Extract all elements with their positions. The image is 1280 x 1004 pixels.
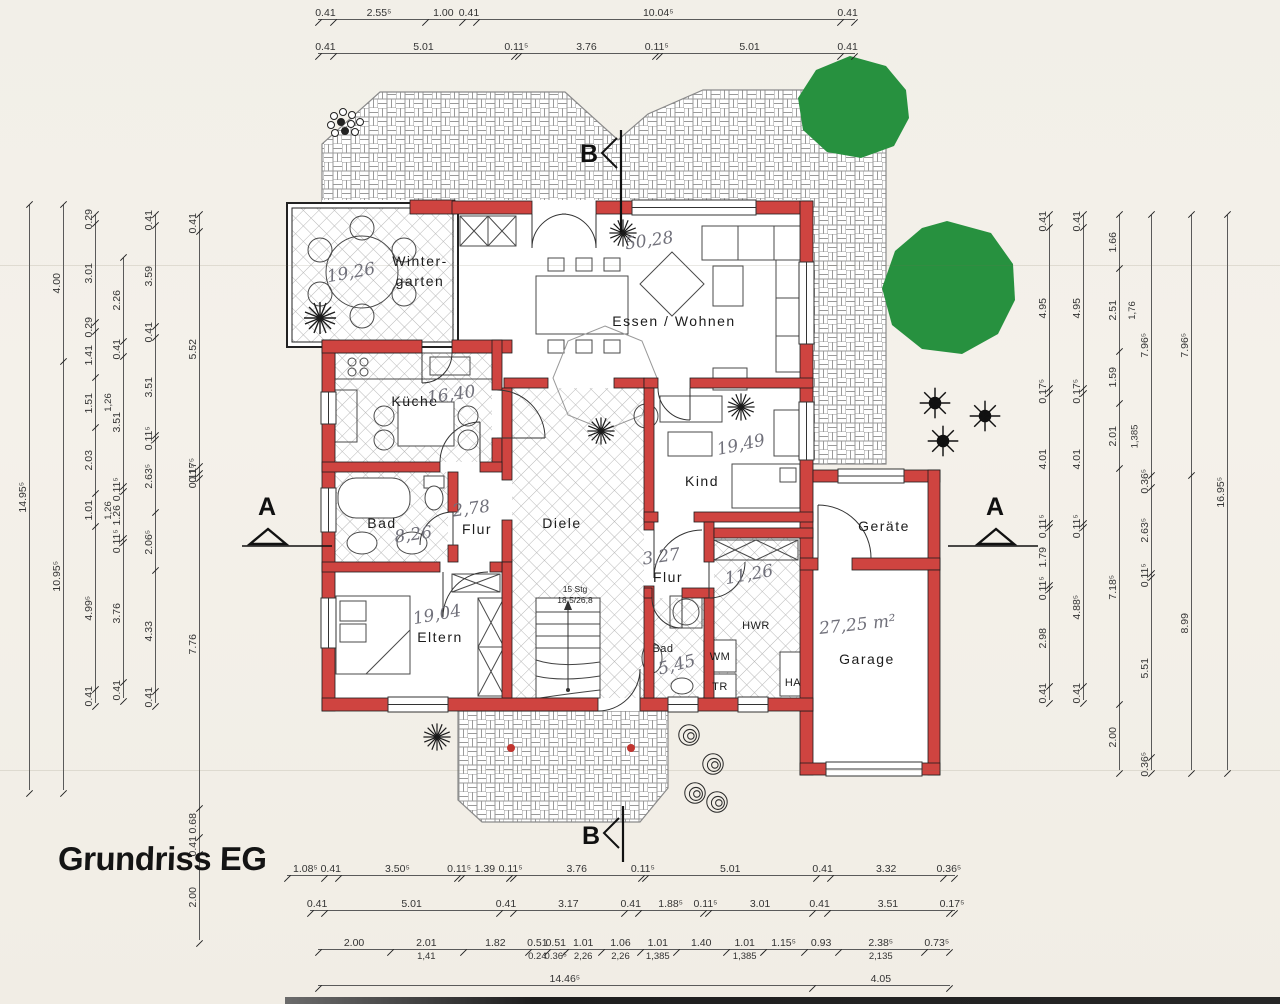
dim-segment: 1.40 (676, 936, 726, 954)
window (799, 402, 814, 460)
dim-value: 2.01 (1108, 426, 1119, 446)
tree (882, 221, 1015, 354)
dim-segment: 0.41 (816, 862, 830, 880)
dim-sub-value: 2,135 (869, 951, 893, 962)
dim-segment: 4.95 (1040, 228, 1058, 388)
dim-value: 0.36⁵ (1140, 752, 1151, 777)
drawing-title: Grundriss EG (57, 840, 267, 878)
room-label-wintergarten-1: Winter- (392, 253, 448, 269)
dim-value: 3.17 (558, 899, 578, 916)
dim-value: 0.41 (144, 687, 155, 707)
dim-chain-right-2: 0.414.950.17⁵4.010.11⁵4.88⁵0.41 (1074, 215, 1092, 700)
dim-segment: 2.26 (114, 258, 132, 342)
dim-segment: 3.32 (830, 862, 943, 880)
scanned-floorplan-page: Winter- garten 19,26 Essen / Wohnen 50,2… (0, 0, 1280, 1004)
dim-value: 10.04⁵ (643, 8, 674, 25)
dim-sub-value: 2,26 (611, 951, 630, 962)
dim-chain-right-6: 16.95⁵ (1218, 215, 1236, 770)
dim-segment: 0.41 (840, 6, 855, 24)
stairs-riser: 18,5/26,8 (557, 595, 593, 605)
dim-value: 1.88⁵ (658, 899, 683, 916)
dim-value: 3.51 (878, 899, 898, 916)
dim-segment: 4.99⁵ (86, 527, 104, 690)
dim-value: 4.99⁵ (84, 596, 95, 621)
dim-segment: 1.66 (1110, 215, 1128, 269)
room-label-hwr: HWR (742, 620, 770, 632)
dim-segment: 1.511,26 (86, 378, 104, 427)
dim-segment: 7.76 (190, 479, 208, 809)
dim-segment: 0.41 (146, 692, 164, 703)
room-label-eltern: Eltern (417, 629, 463, 645)
dim-value: 0.17⁵ (940, 899, 965, 916)
dim-segment: 5.01 (333, 40, 514, 58)
dim-segment: 4.00 (54, 205, 72, 362)
window (321, 598, 336, 648)
dim-segment: 0.17⁵ (949, 897, 955, 915)
dim-segment: 0.73⁵ (924, 936, 950, 954)
dim-segment: 2.63⁵ (1142, 488, 1160, 574)
dim-value: 0.41 (1072, 683, 1083, 703)
dim-segment: 1.062,26 (601, 936, 639, 954)
dim-chain-bottom-3: 2.002.011,411.820.510.240.510.36⁵1.012,2… (318, 936, 950, 954)
shrub-spiral (685, 783, 705, 803)
dim-segment: 1.011,385 (726, 936, 762, 954)
dim-value: 0.41 (1038, 683, 1049, 703)
dim-sub-value: 1,76 (1127, 301, 1138, 320)
room-label-geraete: Geräte (858, 518, 910, 534)
dim-segment: 2.38⁵2,135 (838, 936, 924, 954)
dim-segment: 4.05 (812, 972, 950, 990)
dim-value: 5.52 (188, 339, 199, 359)
dim-segment: 0.41 (310, 897, 324, 915)
dim-value: 4.95 (1072, 298, 1083, 318)
dim-value: 1.79 (1038, 547, 1049, 567)
sun-symbol (970, 401, 1001, 432)
dim-sub-value: 1,385 (646, 951, 670, 962)
dim-segment: 2.011,41 (390, 936, 462, 954)
dim-value: 1.26 (112, 505, 123, 525)
dim-chain-right-5: 7.96⁵8.99 (1182, 215, 1200, 770)
garage-door (826, 762, 922, 776)
dim-value: 4.00 (52, 273, 63, 293)
dim-segment: 2.63⁵ (146, 440, 164, 513)
dim-value: 7.18⁵ (1108, 575, 1119, 600)
dim-value: 3.01 (750, 899, 770, 916)
room-label-wintergarten-2: garten (396, 273, 445, 289)
scan-shadow-bar (285, 997, 1280, 1004)
dim-segment: 14.46⁵ (318, 972, 812, 990)
dim-segment: 3.17 (513, 897, 623, 915)
dim-value: 3.59 (144, 266, 155, 286)
dim-value: 5.01 (401, 899, 421, 916)
dim-value: 0.73⁵ (924, 938, 949, 955)
dim-value: 4.01 (1072, 449, 1083, 469)
dim-sub-value: 2,26 (574, 951, 593, 962)
dim-value: 1.39 (475, 864, 495, 881)
dim-segment: 3.01 (86, 224, 104, 322)
dim-value: 4.33 (144, 621, 155, 641)
dim-value: 4.05 (871, 974, 891, 991)
dim-segment: 4.88⁵ (1074, 528, 1092, 686)
dim-value: 3.76 (566, 864, 586, 881)
dim-segment: 0.41 (114, 683, 132, 698)
dim-segment: 1.011,26 (86, 494, 104, 527)
dim-chain-right-1: 0.414.950.17⁵4.010.11⁵1.790.11⁵2.980.41 (1040, 215, 1058, 700)
dim-segment: 7.96⁵ (1142, 215, 1160, 476)
dim-chain-left-3: 0.293.010.291.411.511,262.031.011,264.99… (86, 215, 104, 703)
dim-value: 3.01 (84, 263, 95, 283)
dim-segment: 5.01 (645, 862, 816, 880)
dim-value: 3.76 (576, 42, 596, 59)
dim-segment: 1.00 (425, 6, 461, 24)
dim-value: 1.15⁵ (771, 938, 796, 955)
dim-value: 0.41 (837, 8, 857, 25)
dim-sub-value: 1,385 (1129, 425, 1140, 449)
dim-segment: 0.510.36⁵ (547, 936, 565, 954)
dim-value: 2.55⁵ (367, 8, 392, 25)
dim-value: 1.40 (691, 938, 711, 955)
dim-segment: 3.51 (146, 338, 164, 436)
room-label-diele: Diele (542, 515, 581, 531)
dim-segment: 0.41 (1074, 687, 1092, 700)
room-label-flur1: Flur (462, 521, 492, 537)
sun-symbol (928, 426, 959, 457)
dim-value: 5.01 (739, 42, 759, 59)
window (321, 392, 336, 424)
window (738, 697, 768, 712)
dim-value: 8.99 (1180, 613, 1191, 633)
dim-segment: 2.55⁵ (333, 6, 425, 24)
dim-chain-left-1: 14.95⁵ (20, 205, 38, 790)
dim-segment: 3.76 (513, 862, 641, 880)
dim-chain-top-2: 0.415.010.11⁵3.760.11⁵5.010.41 (318, 40, 855, 58)
dim-chain-bottom-4: 14.46⁵4.05 (318, 972, 950, 990)
dim-segment: 5.51 (1142, 578, 1160, 759)
dim-value: 0.41 (837, 42, 857, 59)
shrub-spiral (703, 754, 723, 774)
staircase (536, 598, 600, 698)
dim-segment: 1.82 (463, 936, 529, 954)
dim-value: 0.36⁵ (936, 864, 961, 881)
dim-sub-value: 1,26 (103, 394, 114, 413)
dim-segment: 5.52 (190, 232, 208, 466)
room-label-garage: Garage (839, 651, 895, 667)
dim-value: 16.95⁵ (1216, 477, 1227, 508)
red-dot (507, 744, 515, 752)
dim-segment: 0.41 (318, 40, 333, 58)
dim-value: 3.76 (112, 603, 123, 623)
dim-segment: 2.00 (318, 936, 390, 954)
dim-value: 4.01 (1038, 449, 1049, 469)
dim-chain-left-4: 2.260.413.510.11⁵1.260.11⁵3.760.41 (114, 258, 132, 698)
dim-segment: 0.41 (324, 862, 338, 880)
dim-segment: 0.41 (462, 6, 477, 24)
dim-value: 2.63⁵ (144, 464, 155, 489)
window (321, 488, 336, 532)
dim-value: 14.46⁵ (550, 974, 581, 991)
dim-chain-right-3: 1.662.511,761.592.011,3857.18⁵2.00 (1110, 215, 1128, 770)
dim-segment: 3.76 (114, 543, 132, 683)
shrub-spiral (707, 792, 727, 812)
dim-segment: 0.41 (624, 897, 638, 915)
dim-sub-value: 1,385 (733, 951, 757, 962)
dim-segment: 8.99 (1182, 476, 1200, 770)
dim-segment: 1.011,385 (640, 936, 676, 954)
dim-segment: 2.011,385 (1110, 404, 1128, 470)
plant-burst (423, 723, 450, 750)
room-label-essen: Essen / Wohnen (612, 313, 735, 329)
dim-value: 1.51 (84, 393, 95, 413)
shrub-spiral (679, 725, 699, 745)
scan-fold-line (0, 770, 1280, 771)
window (632, 200, 756, 215)
section-a-right-label: A (986, 493, 1004, 521)
dim-value: 2.00 (188, 887, 199, 907)
dim-value: 1.41 (84, 345, 95, 365)
dim-segment: 3.01 (708, 897, 813, 915)
dim-value: 7.96⁵ (1140, 333, 1151, 358)
dim-segment: 2.03 (86, 428, 104, 494)
dim-value: 1.00 (433, 8, 453, 25)
dim-segment: 2.06⁵ (146, 513, 164, 571)
section-b-bottom-label: B (582, 822, 600, 850)
dim-segment: 1.15⁵ (763, 936, 804, 954)
dim-value: 3.51 (144, 377, 155, 397)
label-tr: TR (712, 681, 728, 693)
dim-segment: 14.95⁵ (20, 205, 38, 790)
dim-segment: 0.68 (190, 809, 208, 838)
dim-value: 4.88⁵ (1072, 595, 1083, 620)
dim-segment: 5.01 (324, 897, 499, 915)
dim-segment: 2.98 (1040, 590, 1058, 687)
label-wm: WM (710, 651, 731, 663)
dim-segment: 0.41 (86, 690, 104, 703)
dim-segment: 0.41 (318, 6, 333, 24)
dim-chain-left-5: 0.413.590.413.510.11⁵2.63⁵2.06⁵4.330.41 (146, 215, 164, 703)
dim-value: 2.51 (1108, 300, 1119, 320)
dim-value: 1.82 (485, 938, 505, 955)
window (668, 697, 698, 712)
dim-value: 2.06⁵ (144, 529, 155, 554)
dim-value: 5.01 (720, 864, 740, 881)
section-a-left-label: A (258, 493, 276, 521)
dim-value: 7.76 (188, 634, 199, 654)
dim-value: 3.32 (876, 864, 896, 881)
dim-chain-bottom-1: 1.08⁵0.413.50⁵0.11⁵1.390.11⁵3.760.11⁵5.0… (287, 862, 955, 880)
dim-sub-value: 1,41 (417, 951, 436, 962)
dim-segment: 0.41 (840, 40, 855, 58)
dim-segment: 16.95⁵ (1218, 215, 1236, 770)
dim-value: 2.00 (344, 938, 364, 955)
dim-value: 3.50⁵ (385, 864, 410, 881)
dim-chain-left-6: 0.415.520.17⁵0.11⁵7.760.680.412.00 (190, 215, 208, 940)
dim-segment: 3.50⁵ (338, 862, 457, 880)
dim-segment: 0.93 (804, 936, 838, 954)
dim-segment: 0.41 (812, 897, 826, 915)
dim-value: 4.95 (1038, 298, 1049, 318)
dim-value: 5.01 (413, 42, 433, 59)
dim-value: 10.95⁵ (52, 560, 63, 591)
dim-segment: 1.08⁵ (287, 862, 324, 880)
dim-value: 0.41 (84, 686, 95, 706)
scan-fold-line (0, 265, 1280, 266)
dim-value: 2.03 (84, 450, 95, 470)
dim-segment: 10.95⁵ (54, 362, 72, 790)
section-b-top-label: B (580, 140, 598, 168)
sun-symbol (920, 388, 951, 419)
label-ha: HA (785, 677, 801, 689)
dim-segment: 0.36⁵ (943, 862, 955, 880)
dim-value: 2.26 (112, 290, 123, 310)
dim-chain-top-1: 0.412.55⁵1.000.4110.04⁵0.41 (318, 6, 855, 24)
window (799, 262, 814, 344)
dim-value: 2.00 (1108, 727, 1119, 747)
dim-segment: 7.96⁵ (1182, 215, 1200, 476)
dim-value: 5.51 (1140, 658, 1151, 678)
dim-segment: 7.18⁵ (1110, 469, 1128, 704)
red-dot (627, 744, 635, 752)
dim-segment: 0.36⁵ (1142, 758, 1160, 770)
dim-value: 1.08⁵ (293, 864, 318, 881)
dim-segment: 1.41 (86, 332, 104, 378)
dim-value: 0.41 (188, 213, 199, 233)
room-label-bad2: Bad (652, 643, 673, 655)
window (838, 469, 904, 483)
dim-value: 7.96⁵ (1180, 333, 1191, 358)
dim-segment: 3.51 (827, 897, 949, 915)
dim-value: 2.98 (1038, 628, 1049, 648)
dim-segment: 0.41 (499, 897, 513, 915)
dim-value: 14.95⁵ (18, 482, 29, 513)
dim-segment: 4.33 (146, 571, 164, 692)
dim-value: 0.41 (112, 680, 123, 700)
dim-value: 1.01 (84, 500, 95, 520)
dim-segment: 0.41 (1040, 687, 1058, 700)
dim-segment: 3.51 (114, 357, 132, 487)
room-label-kind: Kind (685, 473, 719, 489)
dim-segment: 2.00 (1110, 705, 1128, 770)
stairs-count: 15 Stg (563, 584, 588, 594)
dim-segment: 1.59 (1110, 352, 1128, 404)
dim-value: 0.93 (811, 938, 831, 955)
dim-chain-left-2: 4.0010.95⁵ (54, 205, 72, 790)
dim-chain-right-4: 7.96⁵0.36⁵2.63⁵0.11⁵5.510.36⁵ (1142, 215, 1160, 770)
dim-segment: 2.511,76 (1110, 269, 1128, 351)
dim-value: 1.66 (1108, 232, 1119, 252)
dim-segment: 3.76 (518, 40, 654, 58)
dim-segment: 3.59 (146, 226, 164, 326)
dim-value: 0.68 (188, 813, 199, 833)
room-label-flur2: Flur (653, 569, 683, 585)
dim-segment: 5.01 (659, 40, 840, 58)
dim-segment: 4.01 (1074, 394, 1092, 524)
dim-segment: 4.01 (1040, 394, 1058, 524)
dim-chain-bottom-2: 0.415.010.413.170.411.88⁵0.11⁵3.010.413.… (310, 897, 955, 915)
dim-segment: 4.95 (1074, 228, 1092, 389)
dim-value: 1.59 (1108, 367, 1119, 387)
dim-value: 2.63⁵ (1140, 518, 1151, 543)
window (388, 697, 448, 712)
dim-segment: 10.04⁵ (476, 6, 840, 24)
dim-value: 3.51 (112, 412, 123, 432)
dim-segment: 1.012,26 (565, 936, 601, 954)
